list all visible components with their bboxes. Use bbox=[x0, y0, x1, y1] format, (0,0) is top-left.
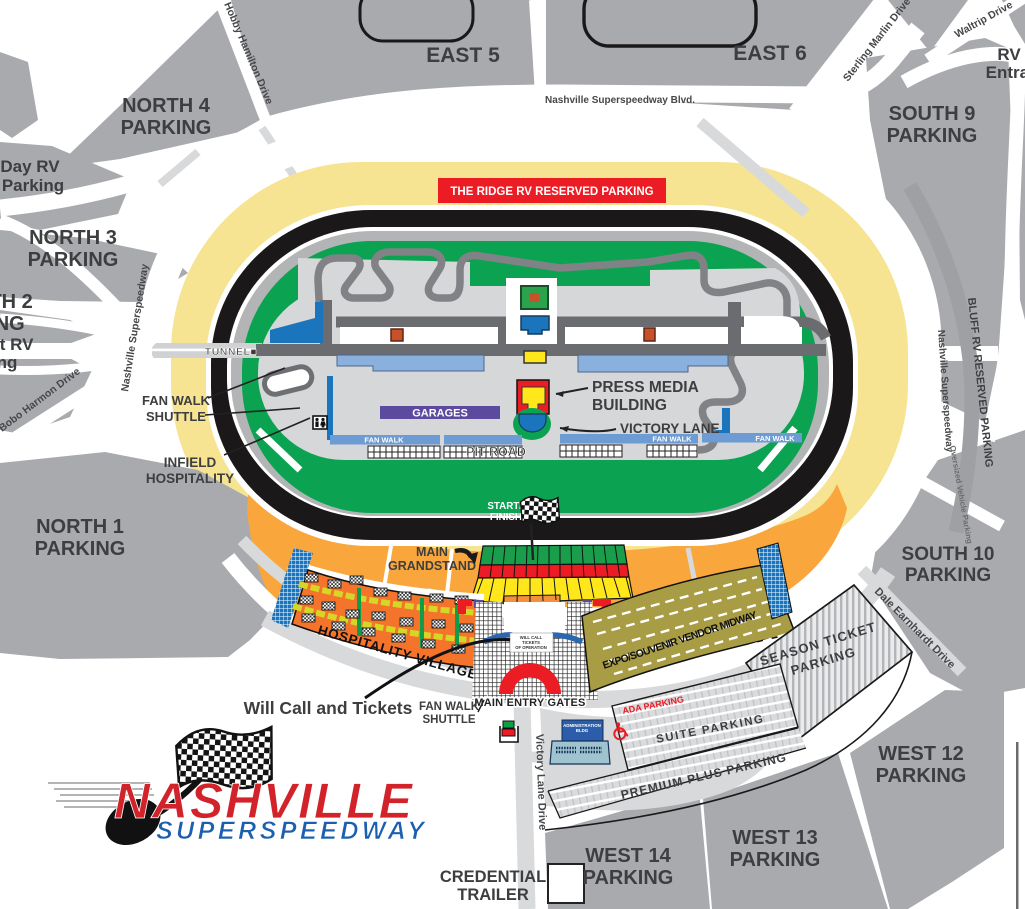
svg-text:Nashville Superspeedway Blvd.: Nashville Superspeedway Blvd. bbox=[545, 95, 695, 106]
svg-text:PARKING: PARKING bbox=[121, 117, 212, 139]
svg-text:INFIELD: INFIELD bbox=[164, 455, 217, 470]
svg-text:Parking: Parking bbox=[2, 176, 64, 195]
svg-text:PIT ROAD: PIT ROAD bbox=[466, 445, 526, 459]
svg-text:RV: RV bbox=[997, 45, 1021, 64]
svg-text:Night RV: Night RV bbox=[0, 335, 34, 354]
svg-text:Entrance: Entrance bbox=[986, 63, 1025, 82]
svg-text:PARKING: PARKING bbox=[583, 867, 674, 889]
svg-text:PARKING: PARKING bbox=[876, 765, 967, 787]
svg-text:NORTH 1: NORTH 1 bbox=[36, 516, 124, 538]
svg-text:HOSPITALITY: HOSPITALITY bbox=[146, 471, 234, 486]
svg-text:FINISH: FINISH bbox=[490, 512, 522, 523]
svg-text:SHUTTLE: SHUTTLE bbox=[146, 409, 206, 424]
svg-text:MAIN: MAIN bbox=[416, 545, 448, 559]
svg-text:BLDG: BLDG bbox=[576, 728, 589, 733]
svg-text:Will Call and Tickets: Will Call and Tickets bbox=[244, 698, 413, 718]
svg-text:START/: START/ bbox=[487, 501, 522, 512]
svg-text:BUILDING: BUILDING bbox=[592, 397, 667, 414]
svg-text:GARAGES: GARAGES bbox=[412, 408, 468, 420]
svg-text:FAN WALK: FAN WALK bbox=[755, 434, 795, 443]
svg-text:Day RV: Day RV bbox=[0, 157, 60, 176]
svg-text:VICTORY LANE: VICTORY LANE bbox=[620, 421, 720, 436]
svg-text:NORTH 2: NORTH 2 bbox=[0, 291, 33, 313]
svg-text:FAN WALK: FAN WALK bbox=[364, 436, 404, 445]
svg-text:CREDENTIAL: CREDENTIAL bbox=[440, 868, 546, 886]
svg-text:PARKING: PARKING bbox=[28, 249, 119, 271]
svg-text:TUNNEL■: TUNNEL■ bbox=[205, 346, 257, 358]
svg-text:EAST 6: EAST 6 bbox=[733, 42, 807, 65]
svg-text:PARKING: PARKING bbox=[905, 565, 991, 586]
svg-text:PARKING: PARKING bbox=[730, 849, 821, 871]
svg-text:WEST 12: WEST 12 bbox=[878, 743, 964, 765]
svg-text:EAST 5: EAST 5 bbox=[426, 44, 500, 67]
svg-text:PARKING: PARKING bbox=[0, 313, 25, 335]
svg-text:SOUTH 10: SOUTH 10 bbox=[902, 544, 995, 565]
svg-text:Parking: Parking bbox=[0, 353, 17, 372]
svg-text:TRAILER: TRAILER bbox=[457, 886, 529, 904]
svg-text:THE RIDGE RV RESERVED PARKING: THE RIDGE RV RESERVED PARKING bbox=[450, 186, 653, 198]
svg-text:PRESS MEDIA: PRESS MEDIA bbox=[592, 379, 699, 396]
svg-text:OF OPERATION: OF OPERATION bbox=[515, 645, 547, 650]
svg-text:WEST 13: WEST 13 bbox=[732, 827, 818, 849]
svg-text:FAN WALK: FAN WALK bbox=[142, 393, 210, 408]
svg-text:MAIN ENTRY GATES: MAIN ENTRY GATES bbox=[474, 697, 585, 709]
svg-text:GRANDSTAND: GRANDSTAND bbox=[388, 559, 476, 573]
svg-text:SOUTH 9: SOUTH 9 bbox=[889, 103, 976, 125]
svg-text:NORTH 4: NORTH 4 bbox=[122, 95, 211, 117]
svg-text:PARKING: PARKING bbox=[35, 538, 126, 560]
svg-text:NORTH 3: NORTH 3 bbox=[29, 227, 117, 249]
svg-text:FAN WALK: FAN WALK bbox=[419, 701, 480, 713]
svg-text:PARKING: PARKING bbox=[887, 125, 978, 147]
svg-text:WEST 14: WEST 14 bbox=[585, 845, 671, 867]
svg-text:SHUTTLE: SHUTTLE bbox=[422, 714, 475, 726]
